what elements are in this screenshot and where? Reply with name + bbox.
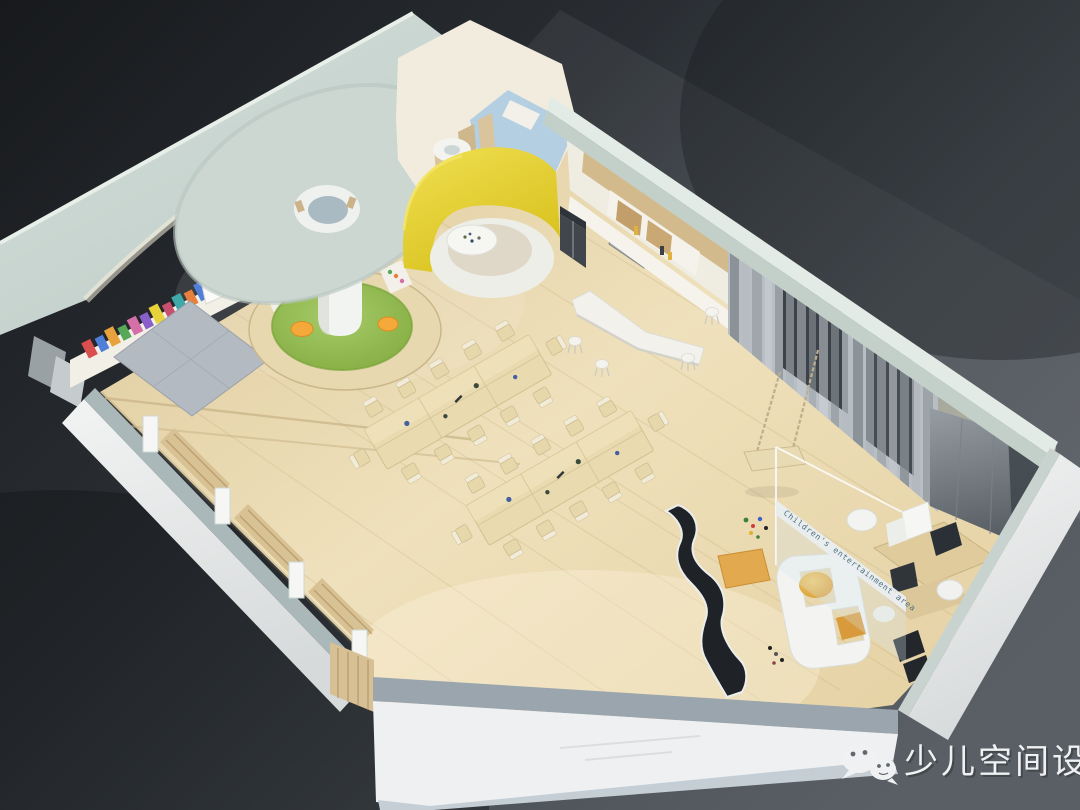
- skylight-ring: [294, 185, 360, 233]
- watermark-text: 少儿空间设计: [904, 742, 1080, 782]
- bottle: [668, 252, 672, 260]
- reception-desk: [430, 218, 554, 298]
- entry-vestibule: [396, 20, 578, 298]
- scene-svg: Children's entertainment area: [0, 0, 1080, 810]
- render-canvas: Children's entertainment area: [0, 0, 1080, 810]
- orange-cushion: [291, 322, 313, 337]
- white-chair: [847, 509, 877, 531]
- orange-cushion: [378, 317, 398, 331]
- bottle: [634, 226, 638, 235]
- bottle: [660, 246, 664, 255]
- white-chair: [937, 580, 963, 600]
